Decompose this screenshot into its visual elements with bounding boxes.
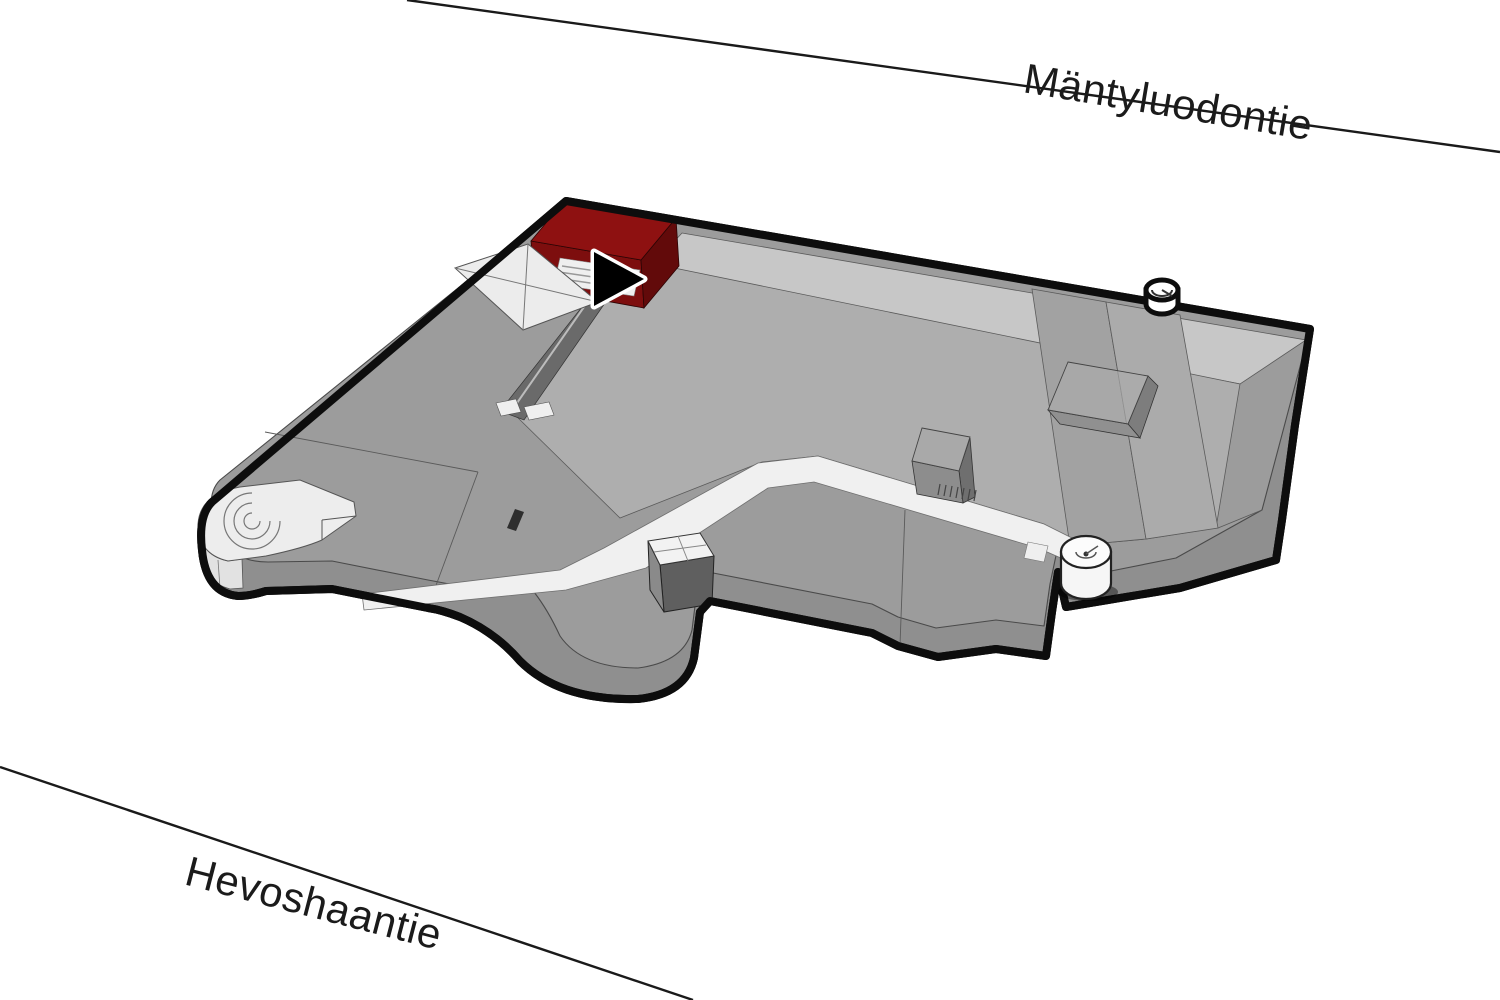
elevator-structure: [648, 533, 714, 612]
spiral-stair-cylinder-top: [1146, 280, 1178, 314]
raised-box-center: [912, 428, 975, 503]
corridor-tab: [1024, 542, 1048, 562]
road-line-top: [407, 0, 1500, 152]
street-label-bottom: Hevoshaantie: [181, 847, 447, 958]
spiral-stair-cylinder-bottom: [1058, 536, 1118, 601]
mall-3d-map: Mäntyluodontie Hevoshaantie: [0, 0, 1500, 1000]
road-line-bottom: [0, 767, 693, 1000]
street-label-top: Mäntyluodontie: [1021, 55, 1317, 150]
map-stage: Mäntyluodontie Hevoshaantie: [0, 0, 1500, 1000]
